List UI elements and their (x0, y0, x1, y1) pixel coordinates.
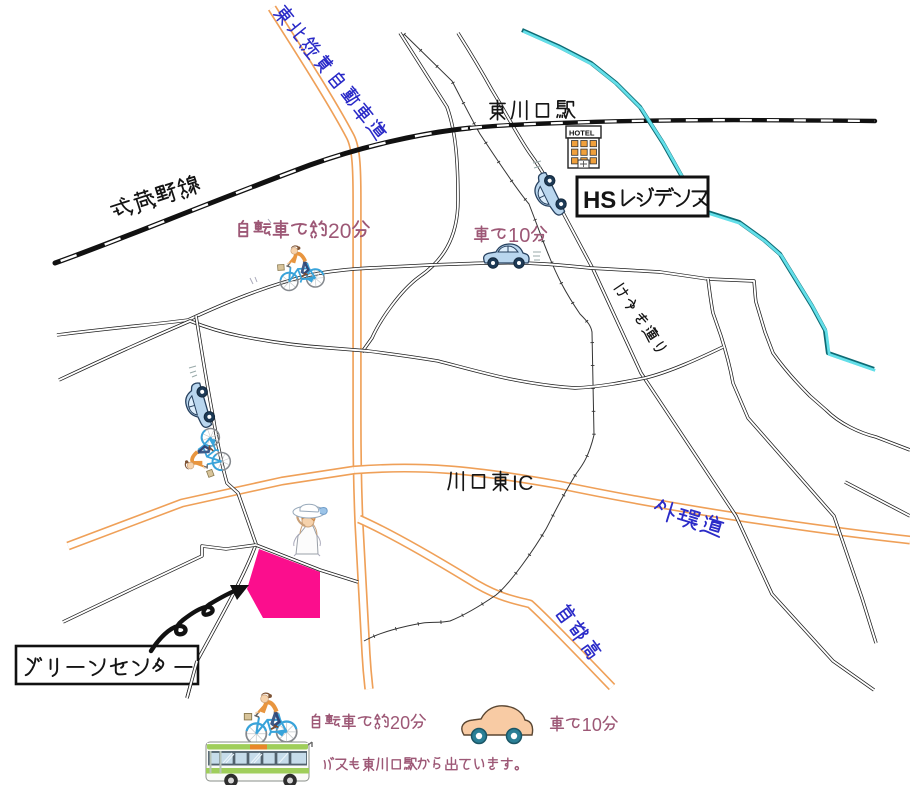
svg-text:I: I (512, 472, 518, 495)
svg-text:0: 0 (519, 225, 530, 247)
svg-text:0: 0 (592, 715, 602, 735)
svg-text:2: 2 (328, 220, 340, 243)
svg-text:S: S (600, 187, 616, 214)
svg-text:0: 0 (340, 220, 352, 243)
svg-text:H: H (583, 187, 600, 214)
svg-text:0: 0 (400, 713, 410, 733)
svg-text:C: C (518, 472, 533, 495)
svg-text:HOTEL: HOTEL (569, 129, 595, 138)
svg-text:2: 2 (390, 713, 400, 733)
svg-text:1: 1 (582, 715, 592, 735)
